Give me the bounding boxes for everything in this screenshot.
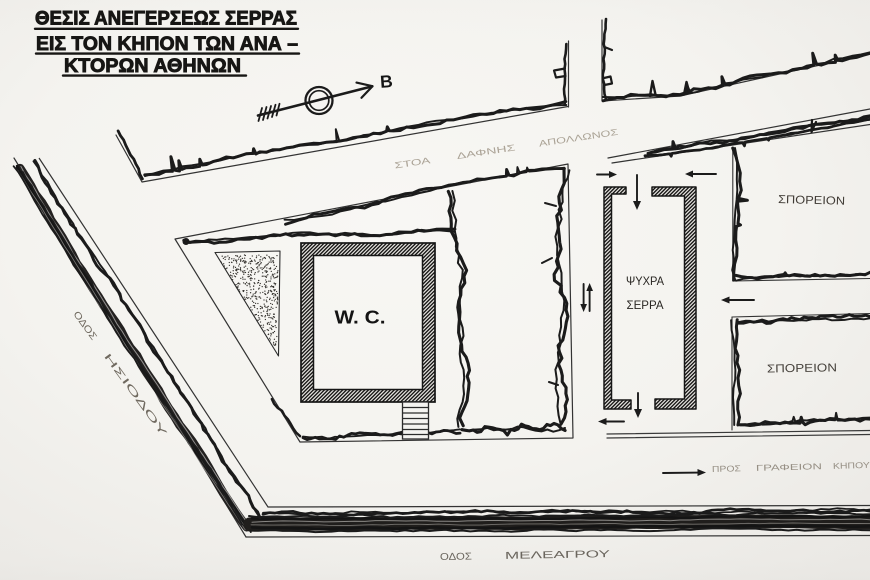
svg-text:W. C.: W. C.	[335, 307, 386, 328]
svg-text:ΚΗΠΟΥ: ΚΗΠΟΥ	[833, 460, 870, 471]
svg-text:ΣΠΟΡΕΙΟΝ: ΣΠΟΡΕΙΟΝ	[767, 362, 837, 375]
svg-text:ΓΡΑΦΕΙΟΝ: ΓΡΑΦΕΙΟΝ	[756, 461, 822, 473]
svg-text:ΨΥΧΡΑ: ΨΥΧΡΑ	[626, 274, 664, 288]
svg-text:ΘΕΣΙΣ ΑΝΕΓΕΡΣΕΩΣ ΣΕΡΡΑΣ: ΘΕΣΙΣ ΑΝΕΓΕΡΣΕΩΣ ΣΕΡΡΑΣ	[35, 8, 297, 30]
svg-text:B: B	[379, 71, 393, 92]
svg-text:ΜΕΛΕΑΓΡΟΥ: ΜΕΛΕΑΓΡΟΥ	[505, 549, 611, 562]
svg-text:ΠΡΟΣ: ΠΡΟΣ	[712, 463, 741, 474]
svg-text:ΚΤΟΡΩΝ ΑΘΗΝΩΝ: ΚΤΟΡΩΝ ΑΘΗΝΩΝ	[64, 55, 241, 77]
svg-text:ΣΕΡΡΑ: ΣΕΡΡΑ	[627, 298, 664, 312]
svg-text:ΟΔΟΣ: ΟΔΟΣ	[440, 551, 472, 563]
svg-text:ΣΠΟΡΕΙΟΝ: ΣΠΟΡΕΙΟΝ	[778, 194, 845, 208]
svg-text:ΕΙΣ ΤΟΝ ΚΗΠΟΝ ΤΩΝ ΑΝΑ –: ΕΙΣ ΤΟΝ ΚΗΠΟΝ ΤΩΝ ΑΝΑ –	[36, 33, 298, 55]
